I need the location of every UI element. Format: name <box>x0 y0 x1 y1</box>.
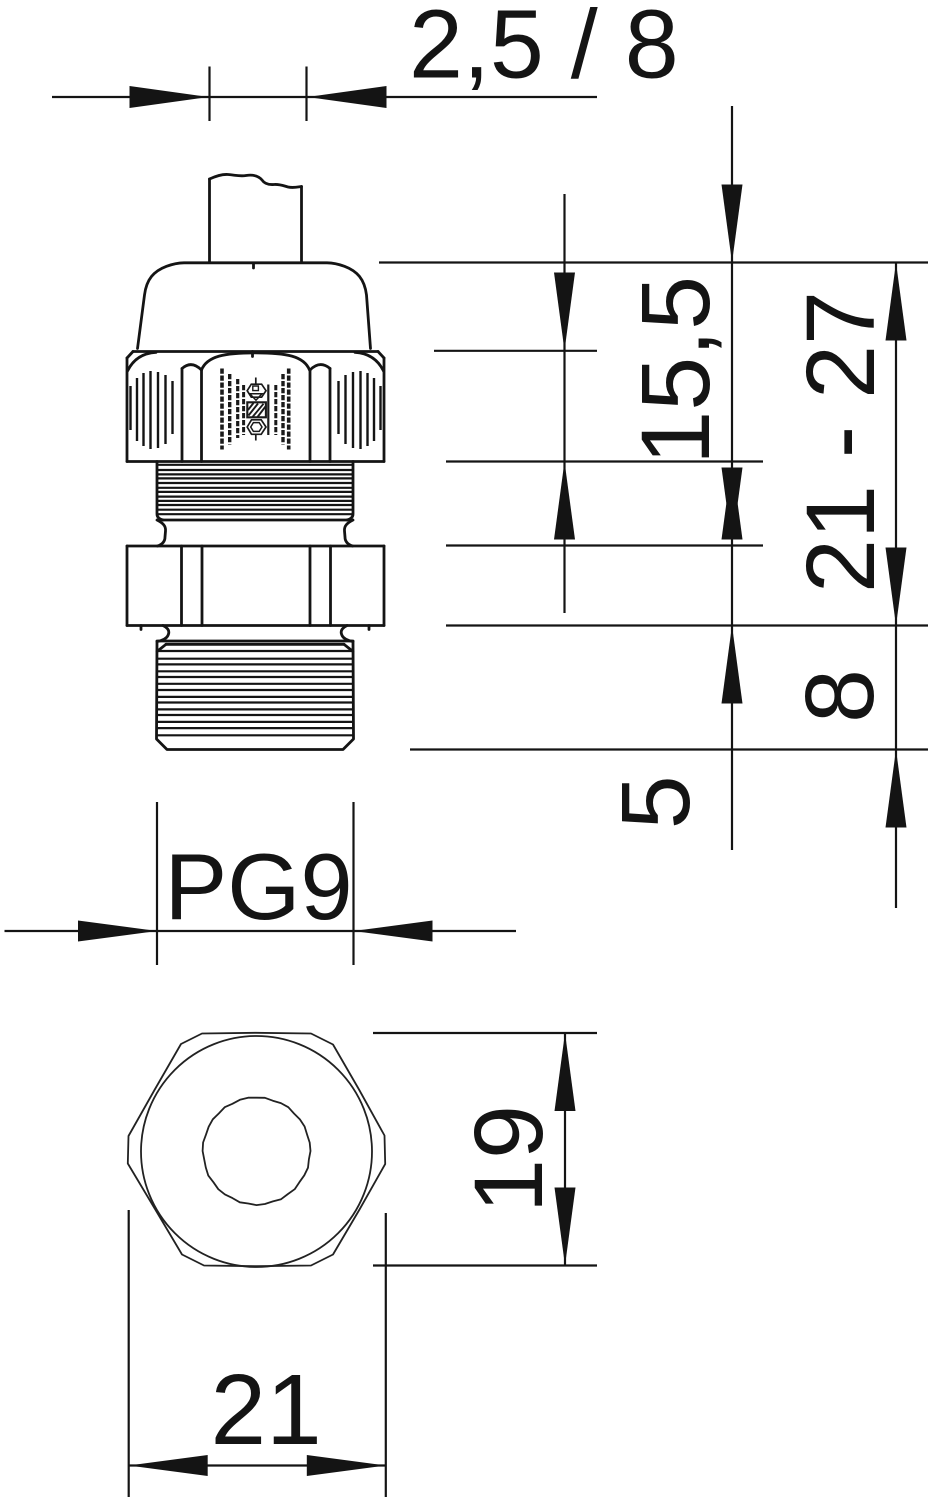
svg-text:15,5: 15,5 <box>621 276 730 465</box>
svg-text:19: 19 <box>454 1105 563 1213</box>
svg-text:8: 8 <box>785 669 894 723</box>
svg-text:5: 5 <box>601 775 710 829</box>
svg-text:2,5 / 8: 2,5 / 8 <box>409 0 679 99</box>
svg-text:21 - 27: 21 - 27 <box>786 291 895 593</box>
svg-text:21: 21 <box>211 1354 322 1466</box>
svg-text:PG9: PG9 <box>165 834 353 939</box>
